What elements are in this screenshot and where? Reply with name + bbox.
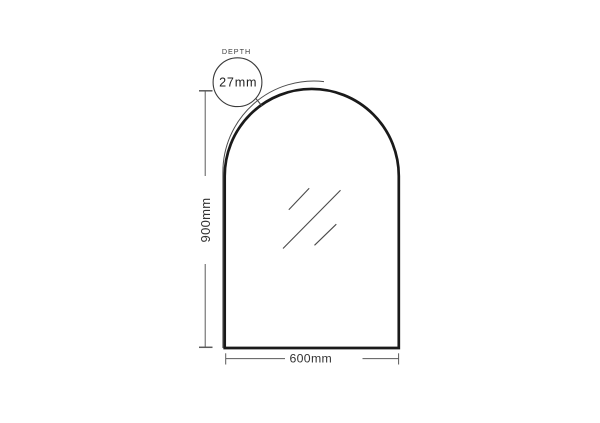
svg-text:DEPTH: DEPTH [222, 47, 251, 56]
svg-text:600mm: 600mm [290, 352, 333, 366]
svg-text:27mm: 27mm [219, 76, 257, 90]
svg-text:900mm: 900mm [198, 198, 213, 243]
